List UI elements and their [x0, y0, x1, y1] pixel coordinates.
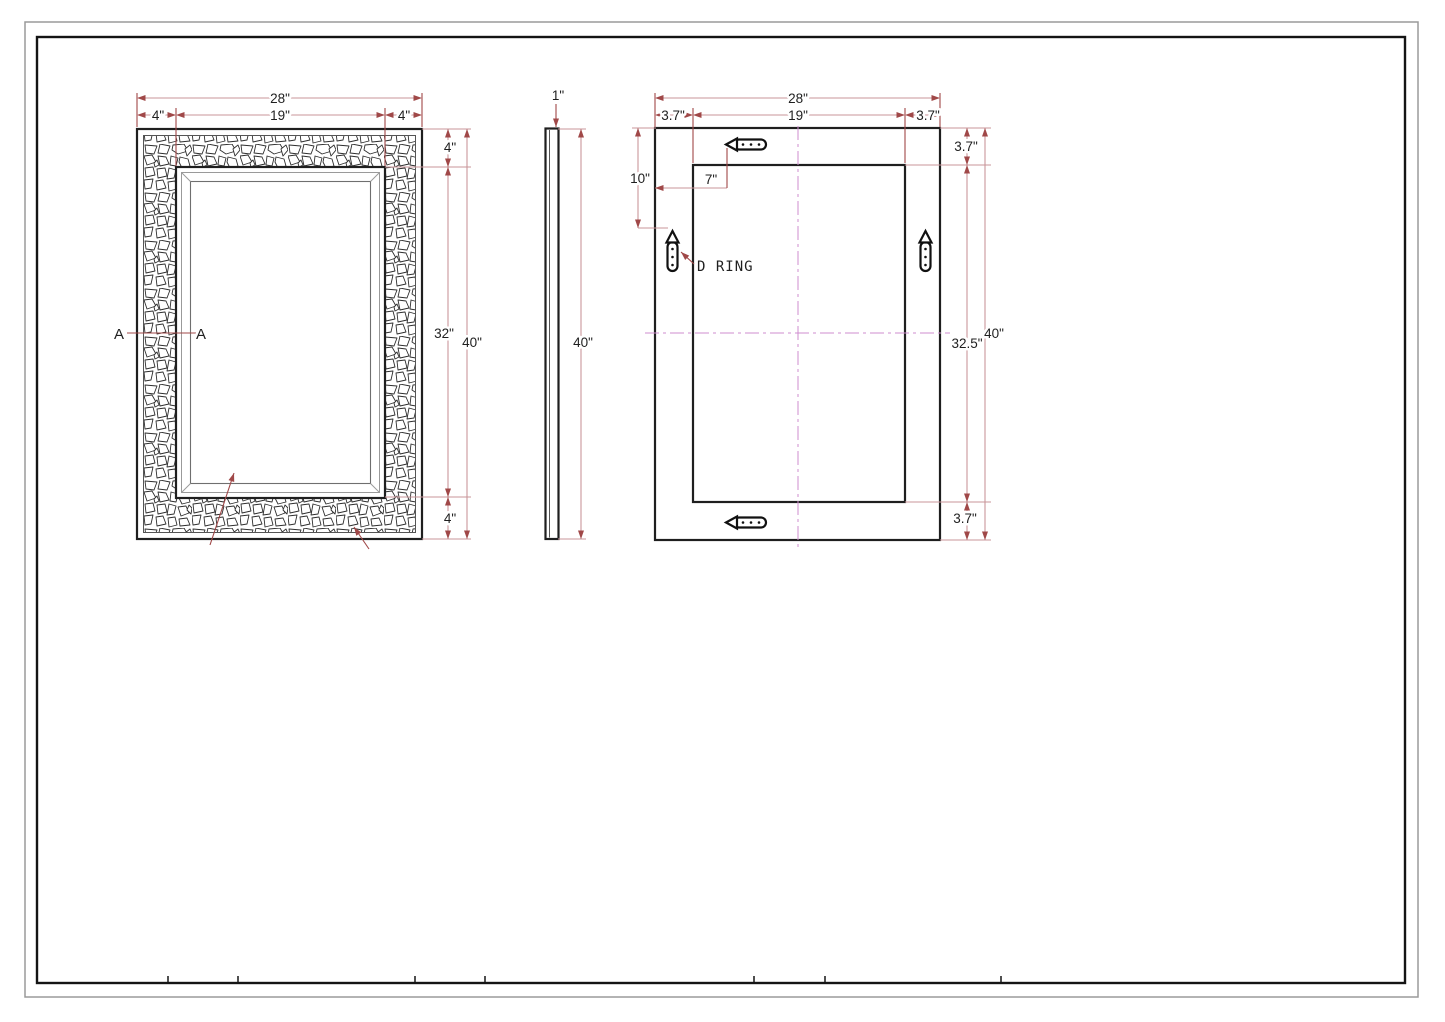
d-ring-callout: D RING [679, 250, 754, 275]
drawing-sheet: A A 28" [0, 0, 1445, 1022]
front-width-mid-label: 19" [270, 108, 290, 123]
back-hanger-inset-label: 7" [705, 172, 718, 187]
d-ring-icon-right [920, 231, 932, 271]
front-height-top-label: 4" [444, 140, 457, 155]
back-border-bottom-label: 3.7" [953, 511, 977, 526]
side-thickness-label: 1" [552, 88, 565, 103]
back-width-mid-label: 19" [788, 108, 808, 123]
side-height-label: 40" [573, 335, 593, 350]
back-dimension-lines [632, 93, 991, 540]
d-ring-icon-left [667, 231, 679, 271]
section-label-a-left: A [114, 326, 124, 343]
side-view: 1" 40" [546, 88, 594, 539]
side-dimension-lines [556, 104, 586, 539]
d-ring-icon-top [726, 139, 766, 151]
front-width-left-label: 4" [152, 108, 165, 123]
sheet-fold-marks [168, 976, 1001, 982]
back-height-total-label: 40" [984, 326, 1004, 341]
back-hanger-drop-label: 10" [630, 171, 650, 186]
back-view: D RING [630, 91, 1004, 550]
back-width-left-label: 3.7" [661, 108, 685, 123]
technical-drawing: A A 28" [0, 0, 1445, 1022]
back-height-mid-label: 32.5" [951, 336, 982, 351]
front-view: A A 28" [114, 91, 482, 549]
mirror-opening [176, 167, 385, 498]
back-border-top-label: 3.7" [954, 139, 978, 154]
side-profile-outline [546, 129, 559, 540]
front-height-bottom-label: 4" [444, 511, 457, 526]
back-width-right-label: 3.7" [916, 108, 940, 123]
d-ring-icon-bottom [726, 517, 766, 529]
front-width-right-label: 4" [398, 108, 411, 123]
mosaic-frame-texture [144, 136, 415, 532]
back-width-total-label: 28" [788, 91, 808, 106]
section-label-a-right: A [196, 326, 206, 343]
d-ring-label: D RING [697, 259, 754, 275]
front-height-total-label: 40" [462, 335, 482, 350]
mirror-bevel [182, 173, 380, 493]
back-dimension-arrows [635, 95, 988, 540]
front-width-total-label: 28" [270, 91, 290, 106]
front-height-mid-label: 32" [434, 326, 454, 341]
